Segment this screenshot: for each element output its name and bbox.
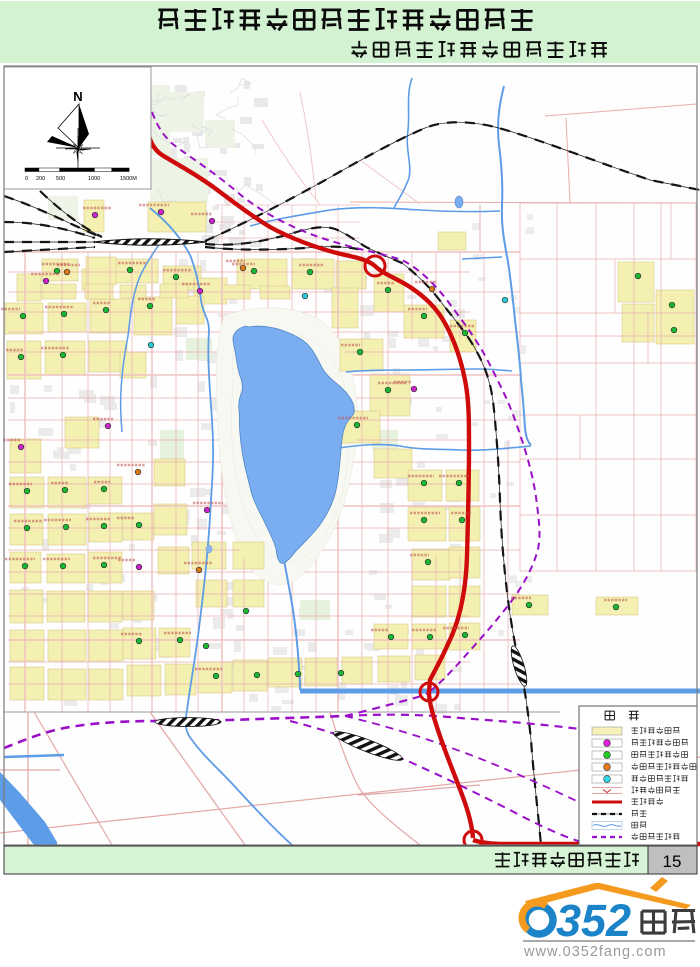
- svg-text:0: 0: [25, 176, 28, 182]
- svg-text:N: N: [73, 89, 82, 104]
- svg-text:1500M: 1500M: [120, 176, 137, 182]
- svg-text:1000: 1000: [88, 176, 100, 182]
- svg-text:352: 352: [556, 895, 631, 946]
- svg-text:www.0352fang.com: www.0352fang.com: [523, 944, 667, 960]
- svg-text:15: 15: [663, 852, 682, 871]
- svg-text:500: 500: [56, 176, 65, 182]
- svg-text:200: 200: [36, 176, 45, 182]
